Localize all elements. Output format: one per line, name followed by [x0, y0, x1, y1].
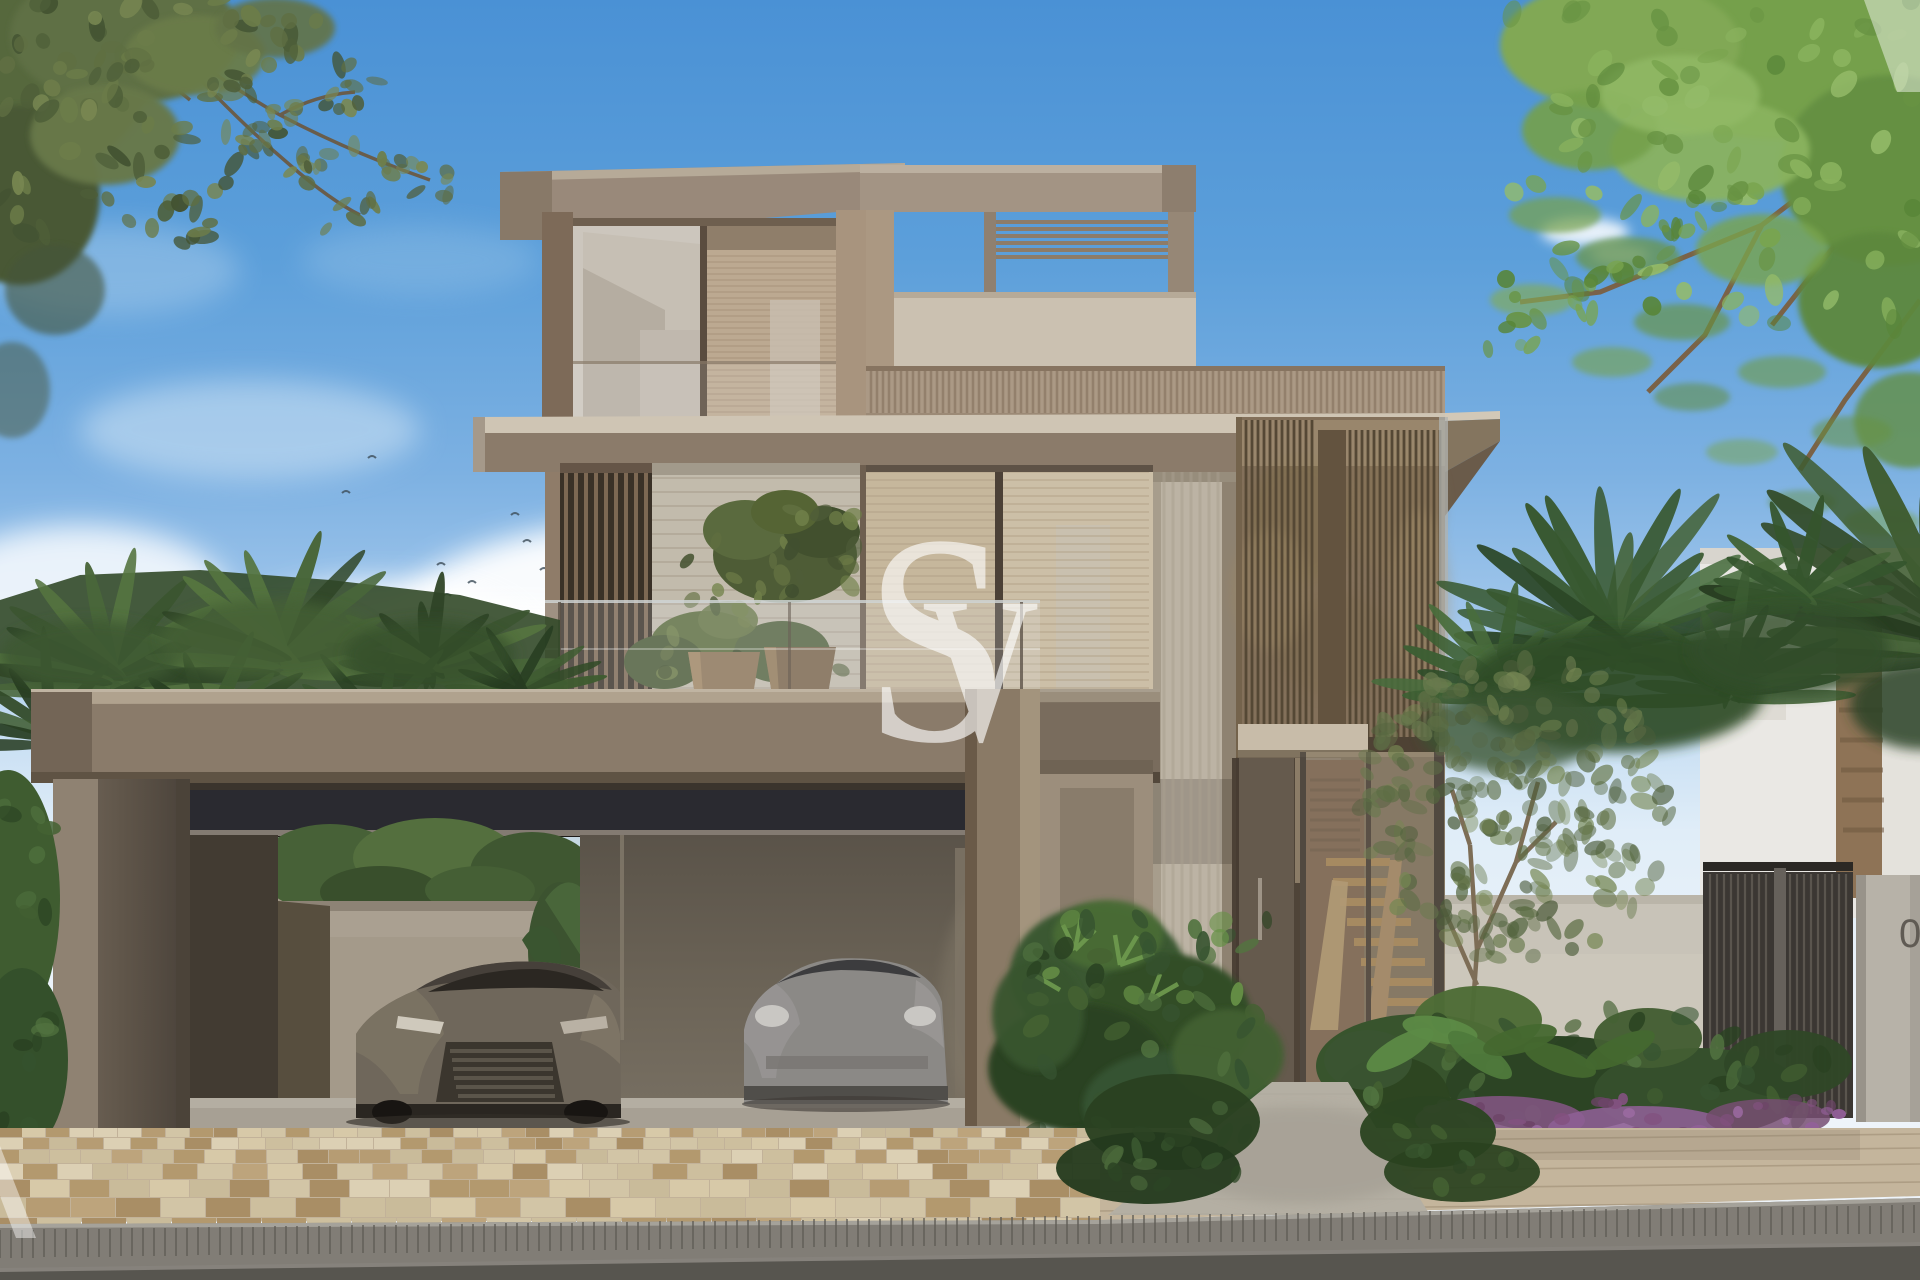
svg-text:0: 0 [1899, 912, 1920, 956]
svg-text:V: V [922, 556, 1039, 786]
